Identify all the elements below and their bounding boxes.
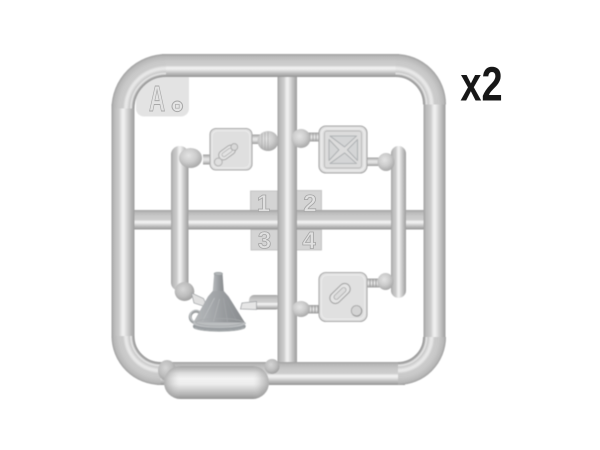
svg-text:4: 4 [302,227,316,254]
svg-text:3: 3 [258,227,271,254]
svg-text:x2: x2 [460,58,502,111]
svg-text:A: A [149,80,165,120]
svg-text:2: 2 [303,191,316,218]
svg-text:1: 1 [257,191,270,218]
